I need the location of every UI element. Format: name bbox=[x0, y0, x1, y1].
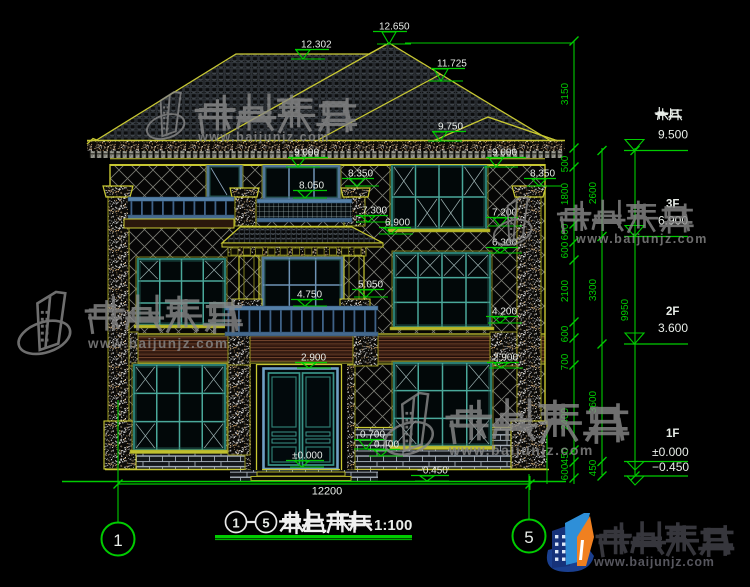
svg-text:9.500: 9.500 bbox=[658, 128, 688, 142]
svg-text:8.350: 8.350 bbox=[348, 169, 373, 180]
svg-text:www.baijunjz.com: www.baijunjz.com bbox=[87, 336, 229, 351]
svg-text:1:100: 1:100 bbox=[374, 517, 412, 534]
svg-text:3150: 3150 bbox=[560, 82, 571, 105]
svg-text:12.302: 12.302 bbox=[301, 40, 332, 51]
svg-text:600: 600 bbox=[560, 241, 571, 258]
svg-text:5: 5 bbox=[524, 528, 533, 547]
svg-text:2.900: 2.900 bbox=[301, 353, 326, 364]
svg-text:±0.000: ±0.000 bbox=[292, 451, 323, 462]
svg-text:4.750: 4.750 bbox=[297, 290, 322, 301]
svg-text:−0.450: −0.450 bbox=[417, 466, 448, 477]
svg-text:www.baijunjz.com: www.baijunjz.com bbox=[448, 442, 594, 458]
svg-text:2.900: 2.900 bbox=[493, 353, 518, 364]
svg-text:6.900: 6.900 bbox=[385, 218, 410, 229]
svg-text:700: 700 bbox=[560, 353, 571, 370]
svg-text:www.baijunjz.com: www.baijunjz.com bbox=[197, 130, 330, 144]
svg-text:9.000: 9.000 bbox=[294, 148, 319, 159]
svg-text:12200: 12200 bbox=[312, 486, 343, 498]
svg-text:8.350: 8.350 bbox=[530, 169, 555, 180]
svg-text:3.600: 3.600 bbox=[658, 321, 688, 335]
svg-text:2100: 2100 bbox=[560, 279, 571, 302]
svg-text:9950: 9950 bbox=[620, 298, 631, 321]
svg-text:9.750: 9.750 bbox=[438, 122, 463, 133]
svg-text:1: 1 bbox=[113, 531, 122, 550]
svg-text:−0.450: −0.450 bbox=[652, 460, 689, 474]
svg-text:±0.000: ±0.000 bbox=[652, 445, 689, 459]
svg-text:3300: 3300 bbox=[588, 278, 599, 301]
svg-text:450: 450 bbox=[588, 459, 599, 476]
svg-text:5.050: 5.050 bbox=[358, 280, 383, 291]
svg-text:600: 600 bbox=[560, 325, 571, 342]
svg-text:www.baijunjz.com: www.baijunjz.com bbox=[575, 232, 708, 246]
svg-text:600: 600 bbox=[560, 463, 571, 480]
svg-text:7.300: 7.300 bbox=[362, 206, 387, 217]
svg-text:8.050: 8.050 bbox=[299, 181, 324, 192]
svg-text:11.725: 11.725 bbox=[437, 59, 467, 70]
svg-text:2F: 2F bbox=[666, 306, 679, 318]
svg-text:1: 1 bbox=[232, 516, 239, 531]
svg-text:1800: 1800 bbox=[560, 182, 571, 205]
svg-text:1F: 1F bbox=[666, 428, 679, 440]
svg-text:12.650: 12.650 bbox=[379, 22, 410, 33]
svg-text:4.200: 4.200 bbox=[492, 307, 517, 318]
svg-text:www.baijunjz.com: www.baijunjz.com bbox=[593, 555, 715, 569]
svg-text:9.000: 9.000 bbox=[492, 148, 517, 159]
svg-text:2600: 2600 bbox=[588, 181, 599, 204]
svg-text:5: 5 bbox=[262, 516, 269, 531]
svg-text:500: 500 bbox=[560, 155, 571, 172]
